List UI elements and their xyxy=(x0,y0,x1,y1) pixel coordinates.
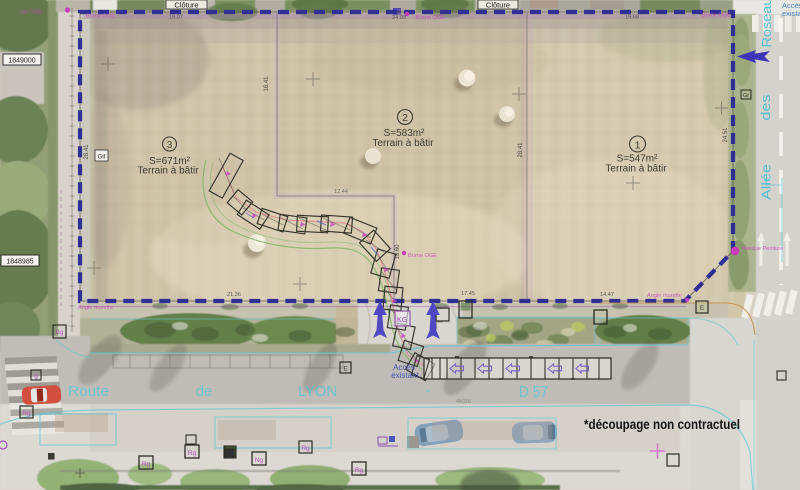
svg-text:28.41: 28.41 xyxy=(518,142,524,158)
svg-text:Marque Peinture: Marque Peinture xyxy=(742,246,783,252)
svg-text:Borne OGE: Borne OGE xyxy=(702,13,731,19)
svg-text:Rg: Rg xyxy=(188,450,197,457)
svg-text:Route: Route xyxy=(68,383,109,400)
svg-text:Gif: Gif xyxy=(98,155,106,161)
svg-text:Borne OGE: Borne OGE xyxy=(86,14,115,20)
svg-text:2: 2 xyxy=(402,113,408,124)
svg-text:3: 3 xyxy=(167,140,173,151)
svg-text:1849000: 1849000 xyxy=(8,58,35,65)
svg-text:-: - xyxy=(425,382,430,399)
svg-text:16.41: 16.41 xyxy=(264,76,270,92)
svg-text:Gr: Gr xyxy=(743,93,749,99)
svg-text:Borne OGE: Borne OGE xyxy=(408,253,437,259)
svg-text:Allée: Allée xyxy=(759,164,774,200)
svg-text:Angle murette: Angle murette xyxy=(647,293,682,299)
svg-text:24.99: 24.99 xyxy=(392,15,406,21)
svg-text:Bg: Bg xyxy=(56,329,64,336)
svg-text:Rg: Rg xyxy=(22,410,31,417)
svg-text:rne OGE: rne OGE xyxy=(20,10,42,16)
svg-text:*découpage non contractuel: *découpage non contractuel xyxy=(584,417,740,432)
svg-text:existant: existant xyxy=(391,371,419,380)
svg-text:Borne OGE: Borne OGE xyxy=(416,15,445,21)
svg-text:1848985: 1848985 xyxy=(6,259,33,266)
svg-text:Angle murette: Angle murette xyxy=(78,305,113,311)
svg-text:24.51: 24.51 xyxy=(723,127,729,143)
svg-text:28.41: 28.41 xyxy=(84,144,90,160)
svg-text:19.07: 19.07 xyxy=(169,15,183,21)
svg-text:17.45: 17.45 xyxy=(461,291,475,297)
svg-text:D 57: D 57 xyxy=(519,384,548,401)
svg-text:Clôture: Clôture xyxy=(486,1,510,10)
svg-text:Terrain à bâtir: Terrain à bâtir xyxy=(372,138,434,149)
svg-text:18.60: 18.60 xyxy=(395,244,401,260)
svg-text:de: de xyxy=(196,383,212,400)
svg-text:12.44: 12.44 xyxy=(334,189,348,195)
svg-text:Clôture: Clôture xyxy=(174,1,198,10)
svg-text:21.36: 21.36 xyxy=(227,292,241,298)
svg-text:4M200: 4M200 xyxy=(456,399,472,405)
svg-text:Terrain à bâtir: Terrain à bâtir xyxy=(137,166,199,177)
svg-text:KG: KG xyxy=(397,317,407,324)
svg-text:14.47: 14.47 xyxy=(600,292,614,298)
svg-text:1: 1 xyxy=(635,140,641,152)
svg-text:Ng: Ng xyxy=(255,457,264,464)
svg-text:Rg: Rg xyxy=(142,461,151,468)
svg-text:des: des xyxy=(758,94,773,121)
svg-text:Terrain à bâtir: Terrain à bâtir xyxy=(605,164,667,175)
svg-text:E: E xyxy=(343,366,348,373)
svg-text:exista: exista xyxy=(782,9,800,18)
svg-text:g: g xyxy=(34,373,38,380)
svg-text:Rg: Rg xyxy=(301,445,310,452)
svg-text:Rg: Rg xyxy=(355,467,364,474)
svg-text:19.68: 19.68 xyxy=(625,15,639,21)
svg-text:E: E xyxy=(700,305,705,312)
svg-text:Roseaux: Roseaux xyxy=(759,0,774,48)
svg-text:LYON: LYON xyxy=(298,383,337,400)
